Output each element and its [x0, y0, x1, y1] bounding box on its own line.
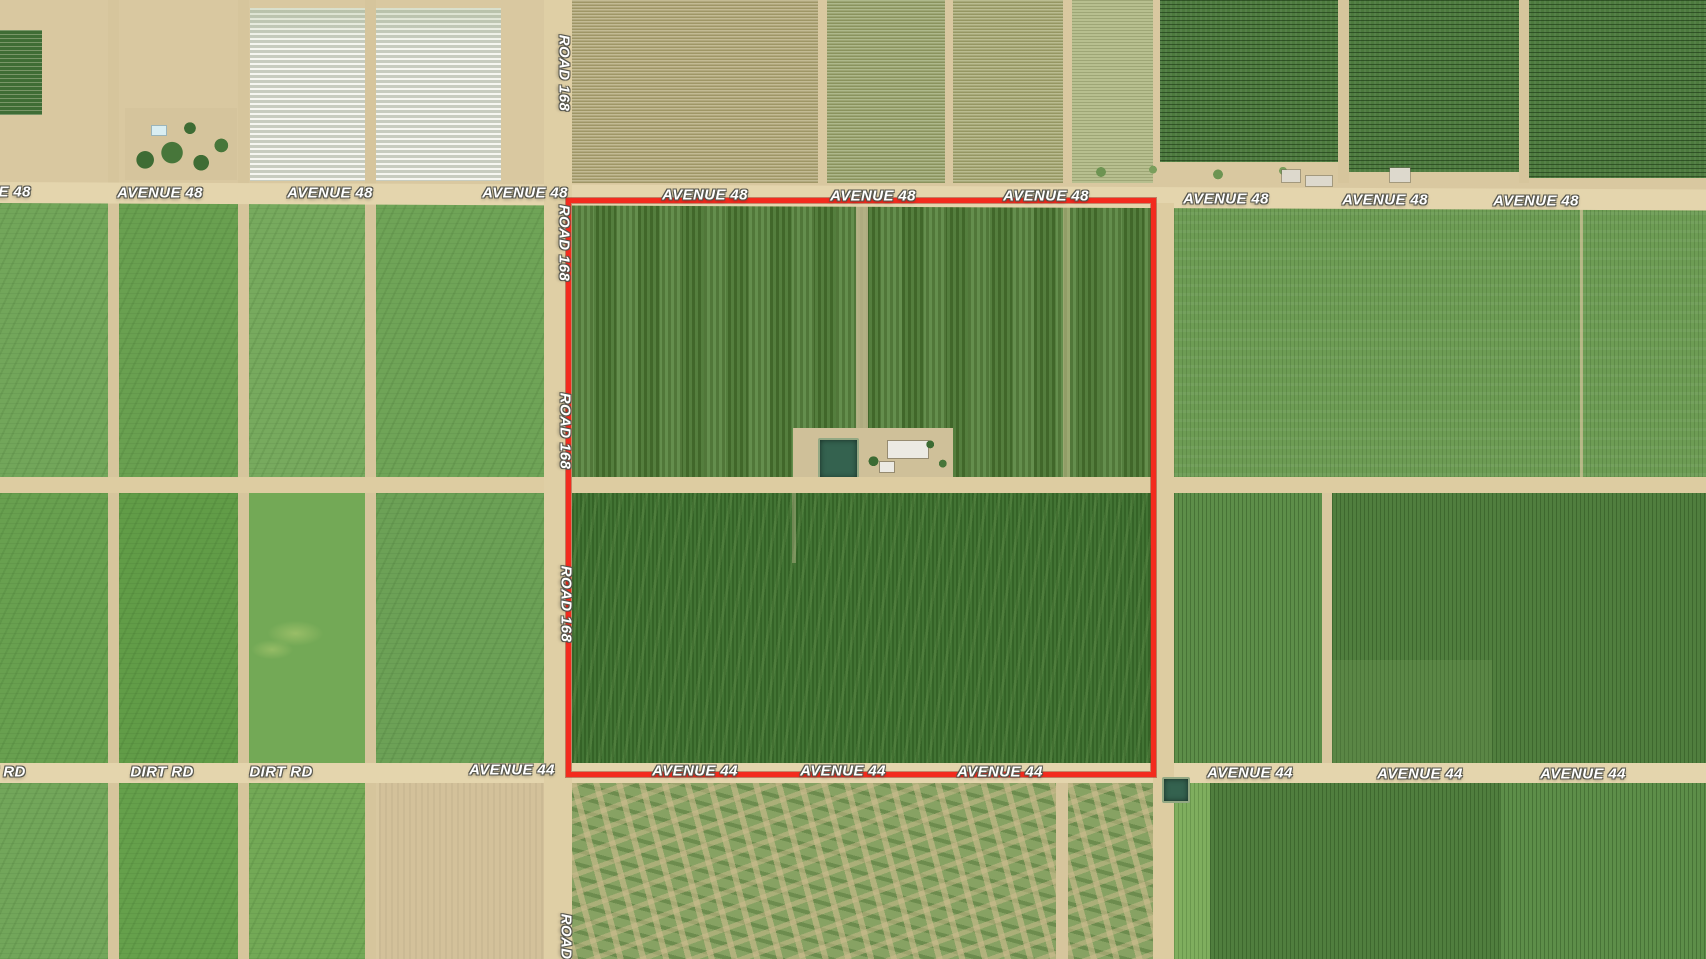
field-pale-rows: [1072, 0, 1153, 183]
road-label: AVENUE 44: [469, 762, 555, 779]
building-roof: [1390, 168, 1410, 182]
field-east: [1174, 493, 1322, 763]
road-label: DIRT RD: [130, 764, 193, 781]
small-pond-southeast: [1162, 777, 1190, 803]
field-west: [249, 783, 376, 959]
field-west: [0, 493, 108, 763]
farm-path: [1338, 0, 1349, 183]
field-west: [376, 203, 544, 477]
road-label: AVENUE 44: [1207, 765, 1293, 782]
road-label: AVENUE 44: [957, 764, 1043, 781]
parcel-east-gap-road: [1153, 203, 1174, 959]
field-citrus-3: [1529, 0, 1706, 178]
road-label: AVENUE 44: [800, 763, 886, 780]
field-olive-1: [572, 0, 818, 183]
road-label: ROAD 168: [556, 35, 573, 112]
building-roof: [1282, 170, 1300, 182]
field-olive-3: [953, 0, 1063, 183]
field-citrus-2: [1349, 0, 1519, 172]
field-west: [376, 493, 544, 763]
field-west: [119, 203, 238, 477]
field-citrus-1: [1160, 0, 1338, 162]
farm-pool: [152, 126, 166, 135]
field-west: [119, 493, 238, 763]
field-subblock: [1332, 660, 1492, 763]
road-label: ROAD 168: [558, 914, 575, 959]
building-roof: [1306, 176, 1332, 186]
road-label: AVENUE 44: [652, 763, 738, 780]
field-west: [249, 203, 365, 477]
road-label: DIRT RD: [0, 764, 26, 781]
road-label: ROAD 168: [558, 566, 575, 643]
road-label: AVENUE 48: [662, 187, 748, 204]
orchard-sparse: [572, 783, 1056, 959]
road-label: AVENUE 48: [482, 185, 568, 202]
farm-path: [1519, 0, 1529, 183]
farm-path: [1056, 783, 1068, 959]
road-label: ROAD 168: [556, 205, 573, 282]
road-label: AVENUE 48: [830, 188, 916, 205]
road-label: AVENUE 48: [287, 185, 373, 202]
field-west: [249, 493, 365, 763]
parcel-boundary: [566, 198, 1156, 777]
road-label: AVENUE 44: [1377, 766, 1463, 783]
field-east-vineyard: [1174, 203, 1706, 477]
orchard-sparse: [1068, 783, 1153, 959]
road-label: AVENUE 48: [0, 184, 31, 201]
road-label: AVENUE 48: [117, 185, 203, 202]
map-canvas[interactable]: AVENUE 48AVENUE 48AVENUE 48AVENUE 48AVEN…: [0, 0, 1706, 959]
field-divider: [1580, 203, 1583, 477]
road-label: AVENUE 48: [1003, 188, 1089, 205]
field-bare-dirt: [379, 783, 544, 959]
field-south-east: [1500, 783, 1706, 959]
field-west: [119, 783, 238, 959]
road-label: ROAD 168: [557, 393, 574, 470]
road-label: AVENUE 44: [1540, 766, 1626, 783]
road-label: AVENUE 48: [1183, 191, 1269, 208]
road-label: DIRT RD: [249, 764, 312, 781]
field-olive-2: [827, 0, 945, 183]
field-south-east: [1210, 783, 1500, 959]
field-west: [0, 203, 108, 477]
farmstead-trees: [125, 108, 237, 180]
field-south-east: [1174, 783, 1210, 959]
road-label: AVENUE 48: [1342, 192, 1428, 209]
field-west: [0, 783, 108, 959]
road-label: AVENUE 48: [1493, 193, 1579, 210]
field-top-left-crop: [0, 30, 42, 115]
